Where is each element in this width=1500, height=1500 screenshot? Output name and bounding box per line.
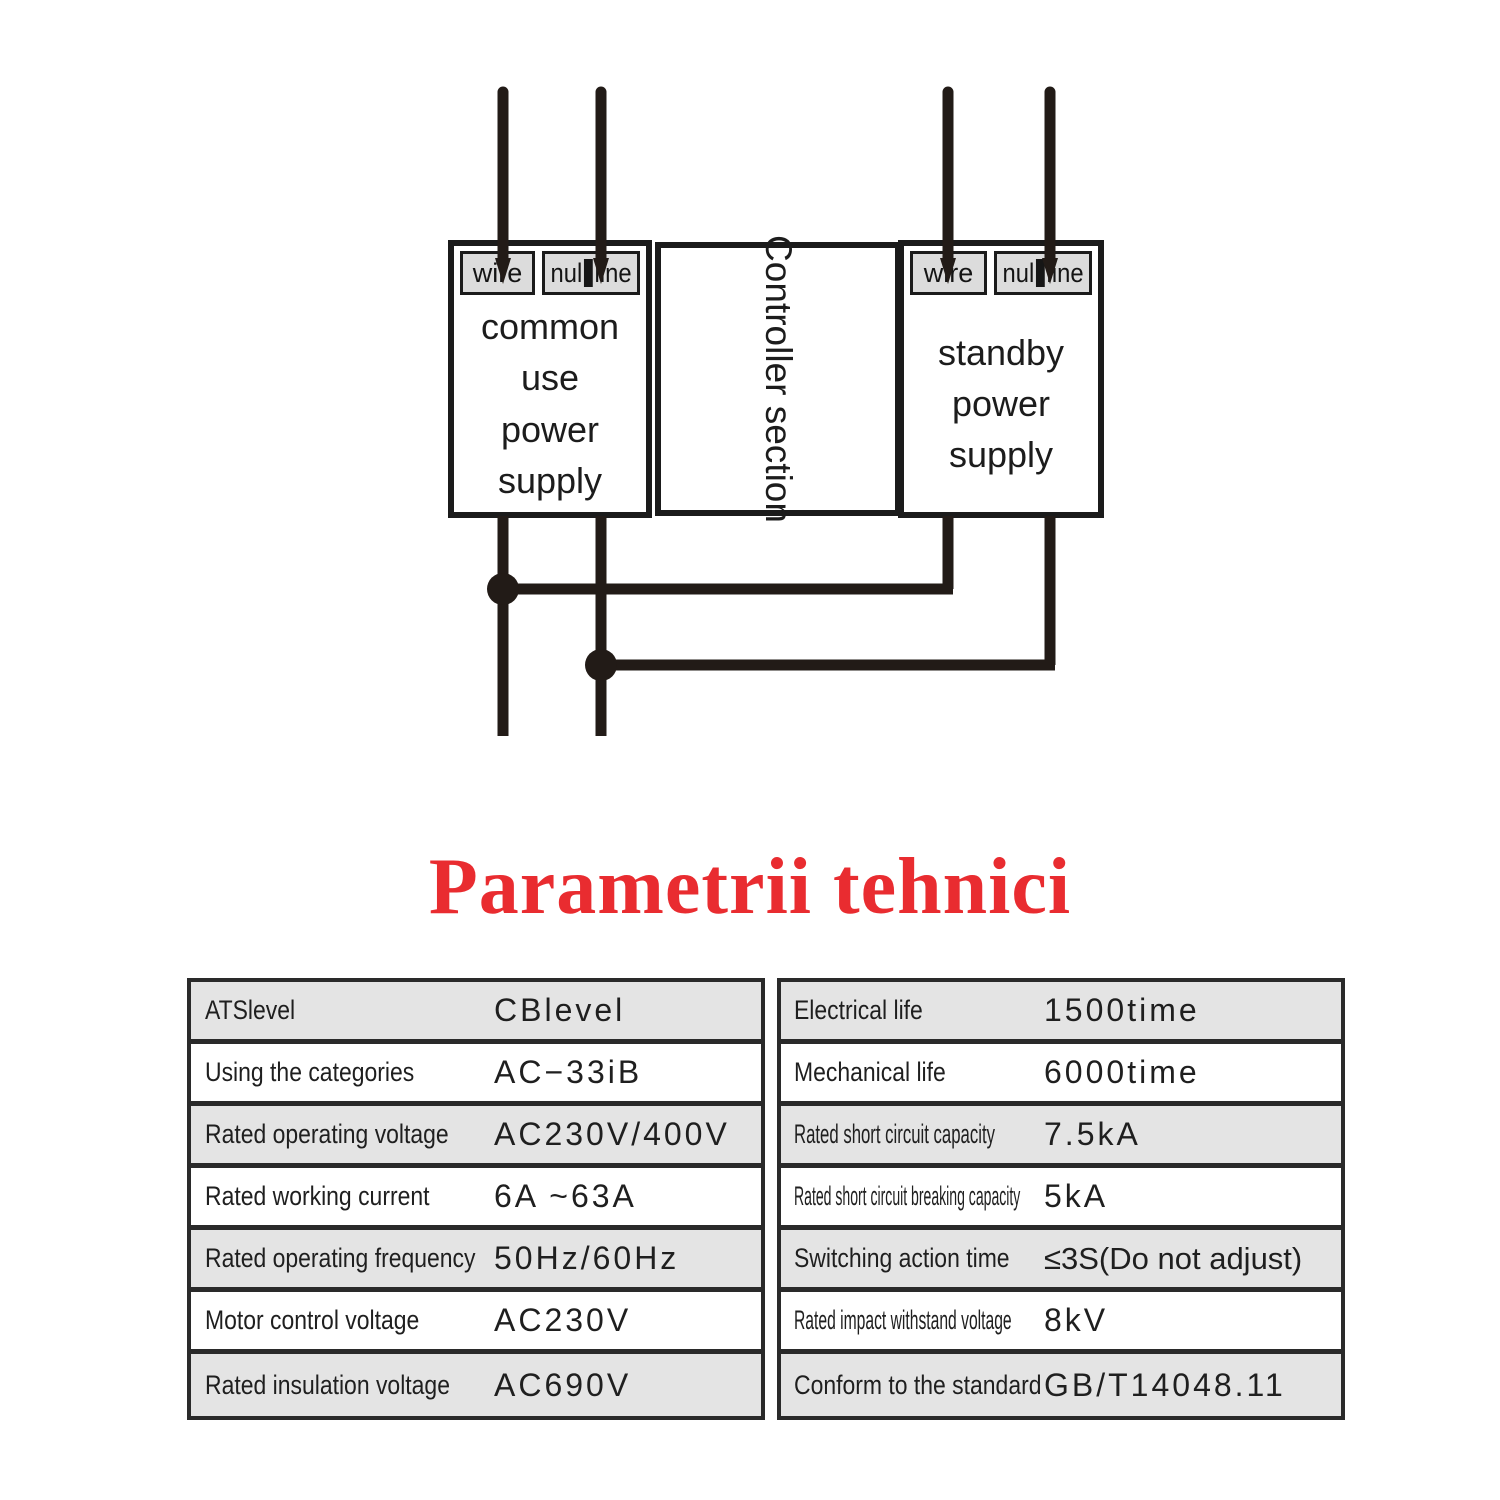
table-row: Mechanical life 6000time: [781, 1044, 1341, 1106]
controller-section-label: Controller section: [757, 235, 799, 523]
parameters-table-right: Electrical life 1500time Mechanical life…: [777, 978, 1345, 1420]
wiring-diagram: wire nul line common use power supply Co…: [0, 0, 1500, 840]
param-label: Conform to the standard: [794, 1370, 1041, 1401]
junction-dot: [487, 573, 519, 605]
table-row: Rated short circuit breaking capacity 5k…: [781, 1168, 1341, 1230]
table-row: Motor control voltage AC230V: [191, 1292, 761, 1354]
param-value: 8kV: [1044, 1302, 1108, 1338]
param-label: Rated working current: [205, 1181, 430, 1212]
table-row: Using the categories AC−33iB: [191, 1044, 761, 1106]
param-label: Using the categories: [205, 1057, 414, 1088]
terminal-row: wire nul line: [904, 246, 1098, 295]
param-label: Switching action time: [794, 1243, 1010, 1274]
param-label: Motor control voltage: [205, 1305, 419, 1336]
param-value: 5kA: [1044, 1178, 1108, 1214]
table-row: Rated impact withstand voltage 8kV: [781, 1292, 1341, 1354]
param-label: Rated insulation voltage: [205, 1370, 450, 1401]
standby-power-supply-label: standby power supply: [904, 295, 1098, 512]
param-value: AC−33iB: [494, 1054, 642, 1090]
terminal-null-line-label: nul line: [1002, 258, 1083, 289]
standby-power-supply-box: wire nul line standby power supply: [898, 240, 1104, 518]
controller-section-box: Controller section: [655, 242, 901, 516]
terminal-null-line-label: nul line: [550, 258, 631, 289]
param-label: Rated operating voltage: [205, 1119, 449, 1150]
table-row: Conform to the standard GB/T14048.11: [781, 1354, 1341, 1416]
page-title: Parametrii tehnici: [0, 842, 1500, 933]
table-row: Rated short circuit capacity 7.5kA: [781, 1106, 1341, 1168]
param-value: 1500time: [1044, 992, 1200, 1028]
param-value: AC230V: [494, 1302, 631, 1338]
param-value: AC230V/400V: [494, 1116, 730, 1152]
common-power-supply-box: wire nul line common use power supply: [448, 240, 652, 518]
null-line-bar-glyph: [584, 259, 593, 287]
param-label: ATSlevel: [205, 995, 295, 1026]
param-value: 6000time: [1044, 1054, 1200, 1090]
table-row: Electrical life 1500time: [781, 982, 1341, 1044]
param-value: 50Hz/60Hz: [494, 1240, 679, 1276]
terminal-wire-label: wire: [924, 258, 974, 289]
product-info-page: wire nul line common use power supply Co…: [0, 0, 1500, 1500]
parameters-tables: ATSlevel CBlevel Using the categories AC…: [187, 978, 1345, 1420]
param-label: Mechanical life: [794, 1057, 946, 1088]
table-row: Rated operating voltage AC230V/400V: [191, 1106, 761, 1168]
terminal-null-line: nul line: [994, 251, 1092, 295]
terminal-row: wire nul line: [454, 246, 646, 295]
table-row: Rated insulation voltage AC690V: [191, 1354, 761, 1416]
null-line-bar-glyph: [1036, 259, 1045, 287]
terminal-null-line: nul line: [542, 251, 640, 295]
terminal-wire-label: wire: [473, 258, 523, 289]
param-value: CBlevel: [494, 992, 625, 1028]
table-row: Rated working current 6A ~63A: [191, 1168, 761, 1230]
parameters-table-left: ATSlevel CBlevel Using the categories AC…: [187, 978, 765, 1420]
param-label: Rated impact withstand voltage: [794, 1305, 1012, 1336]
param-value: 7.5kA: [1044, 1116, 1141, 1152]
param-value: AC690V: [494, 1367, 631, 1403]
table-row: ATSlevel CBlevel: [191, 982, 761, 1044]
param-label: Rated operating frequency: [205, 1243, 475, 1274]
junction-dot: [585, 649, 617, 681]
terminal-wire: wire: [910, 251, 987, 295]
param-label: Rated short circuit breaking capacity: [794, 1181, 1020, 1212]
param-value: GB/T14048.11: [1044, 1367, 1286, 1403]
param-value: ≤3S(Do not adjust): [1044, 1241, 1302, 1276]
table-row: Switching action time ≤3S(Do not adjust): [781, 1230, 1341, 1292]
param-label: Electrical life: [794, 995, 923, 1026]
terminal-wire: wire: [460, 251, 535, 295]
param-value: 6A ~63A: [494, 1178, 637, 1214]
param-label: Rated short circuit capacity: [794, 1119, 995, 1150]
table-row: Rated operating frequency 50Hz/60Hz: [191, 1230, 761, 1292]
common-power-supply-label: common use power supply: [454, 295, 646, 512]
